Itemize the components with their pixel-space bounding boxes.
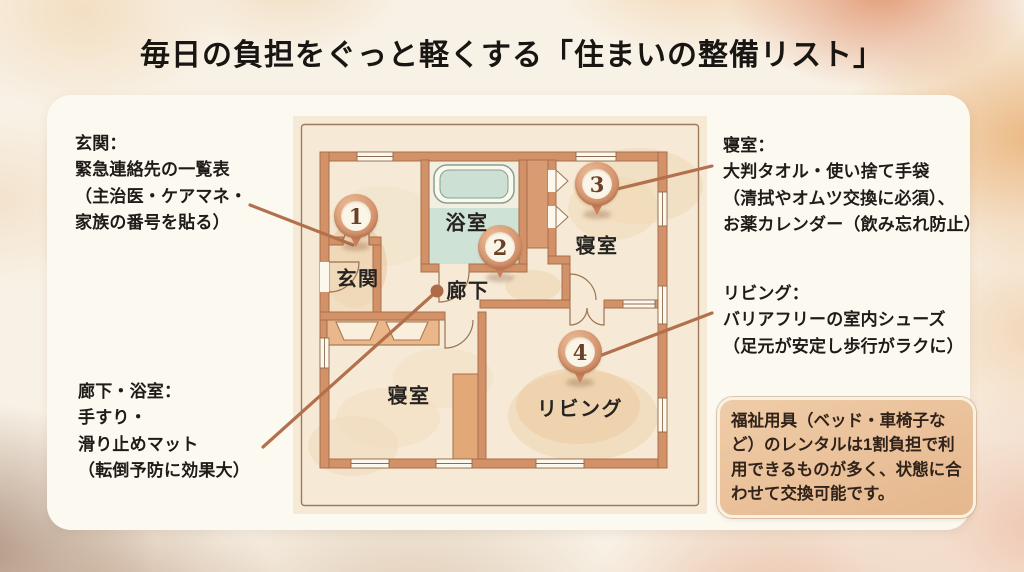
infographic-canvas: 毎日の負担をぐっと軽くする「住まいの整備リスト」 [0,0,1024,572]
room-label-bath: 浴室 [446,207,489,236]
pin-circle: 4 [558,330,602,374]
pin-number: 2 [493,235,508,260]
room-label-living: リビング [537,393,623,422]
pin-number: 3 [590,172,605,197]
pin-circle: 3 [575,162,619,206]
room-label-hallway: 廊下 [447,275,490,304]
room-label-bedroom-ne: 寝室 [576,230,619,259]
pin-number: 4 [573,340,588,365]
infobox-text: 福祉用具（ベッド・車椅子など）のレンタルは1割負担で利用できるものが多く、状態に… [731,412,962,503]
welfare-equipment-infobox: 福祉用具（ベッド・車椅子など）のレンタルは1割負担で利用できるものが多く、状態に… [717,397,976,518]
bathtub-basin [440,170,508,198]
note-entrance: 玄関： 緊急連絡先の一覧表 （主治医・ケアマネ・ 家族の番号を貼る） [75,131,247,236]
note-bedroom: 寝室： 大判タオル・使い捨て手袋 （清拭やオムツ交換に必須）、 お薬カレンダー（… [723,133,981,238]
page-title: 毎日の負担をぐっと軽くする「住まいの整備リスト」 [0,30,1024,74]
floor-plan-drawing [293,116,707,514]
room-label-bedroom-sw: 寝室 [388,380,431,409]
note-living: リビング： バリアフリーの室内シューズ （足元が安定し歩行がラクに） [723,281,964,360]
closet-living-side [453,374,478,459]
room-label-genkan: 玄関 [337,263,380,292]
note-hallway-bath: 廊下・浴室： 手すり・ 滑り止めマット （転倒予防に効果大） [78,379,250,484]
closet-hanger-symbols [327,320,439,345]
pin-circle: 1 [334,194,378,238]
pin-number: 1 [349,204,364,229]
